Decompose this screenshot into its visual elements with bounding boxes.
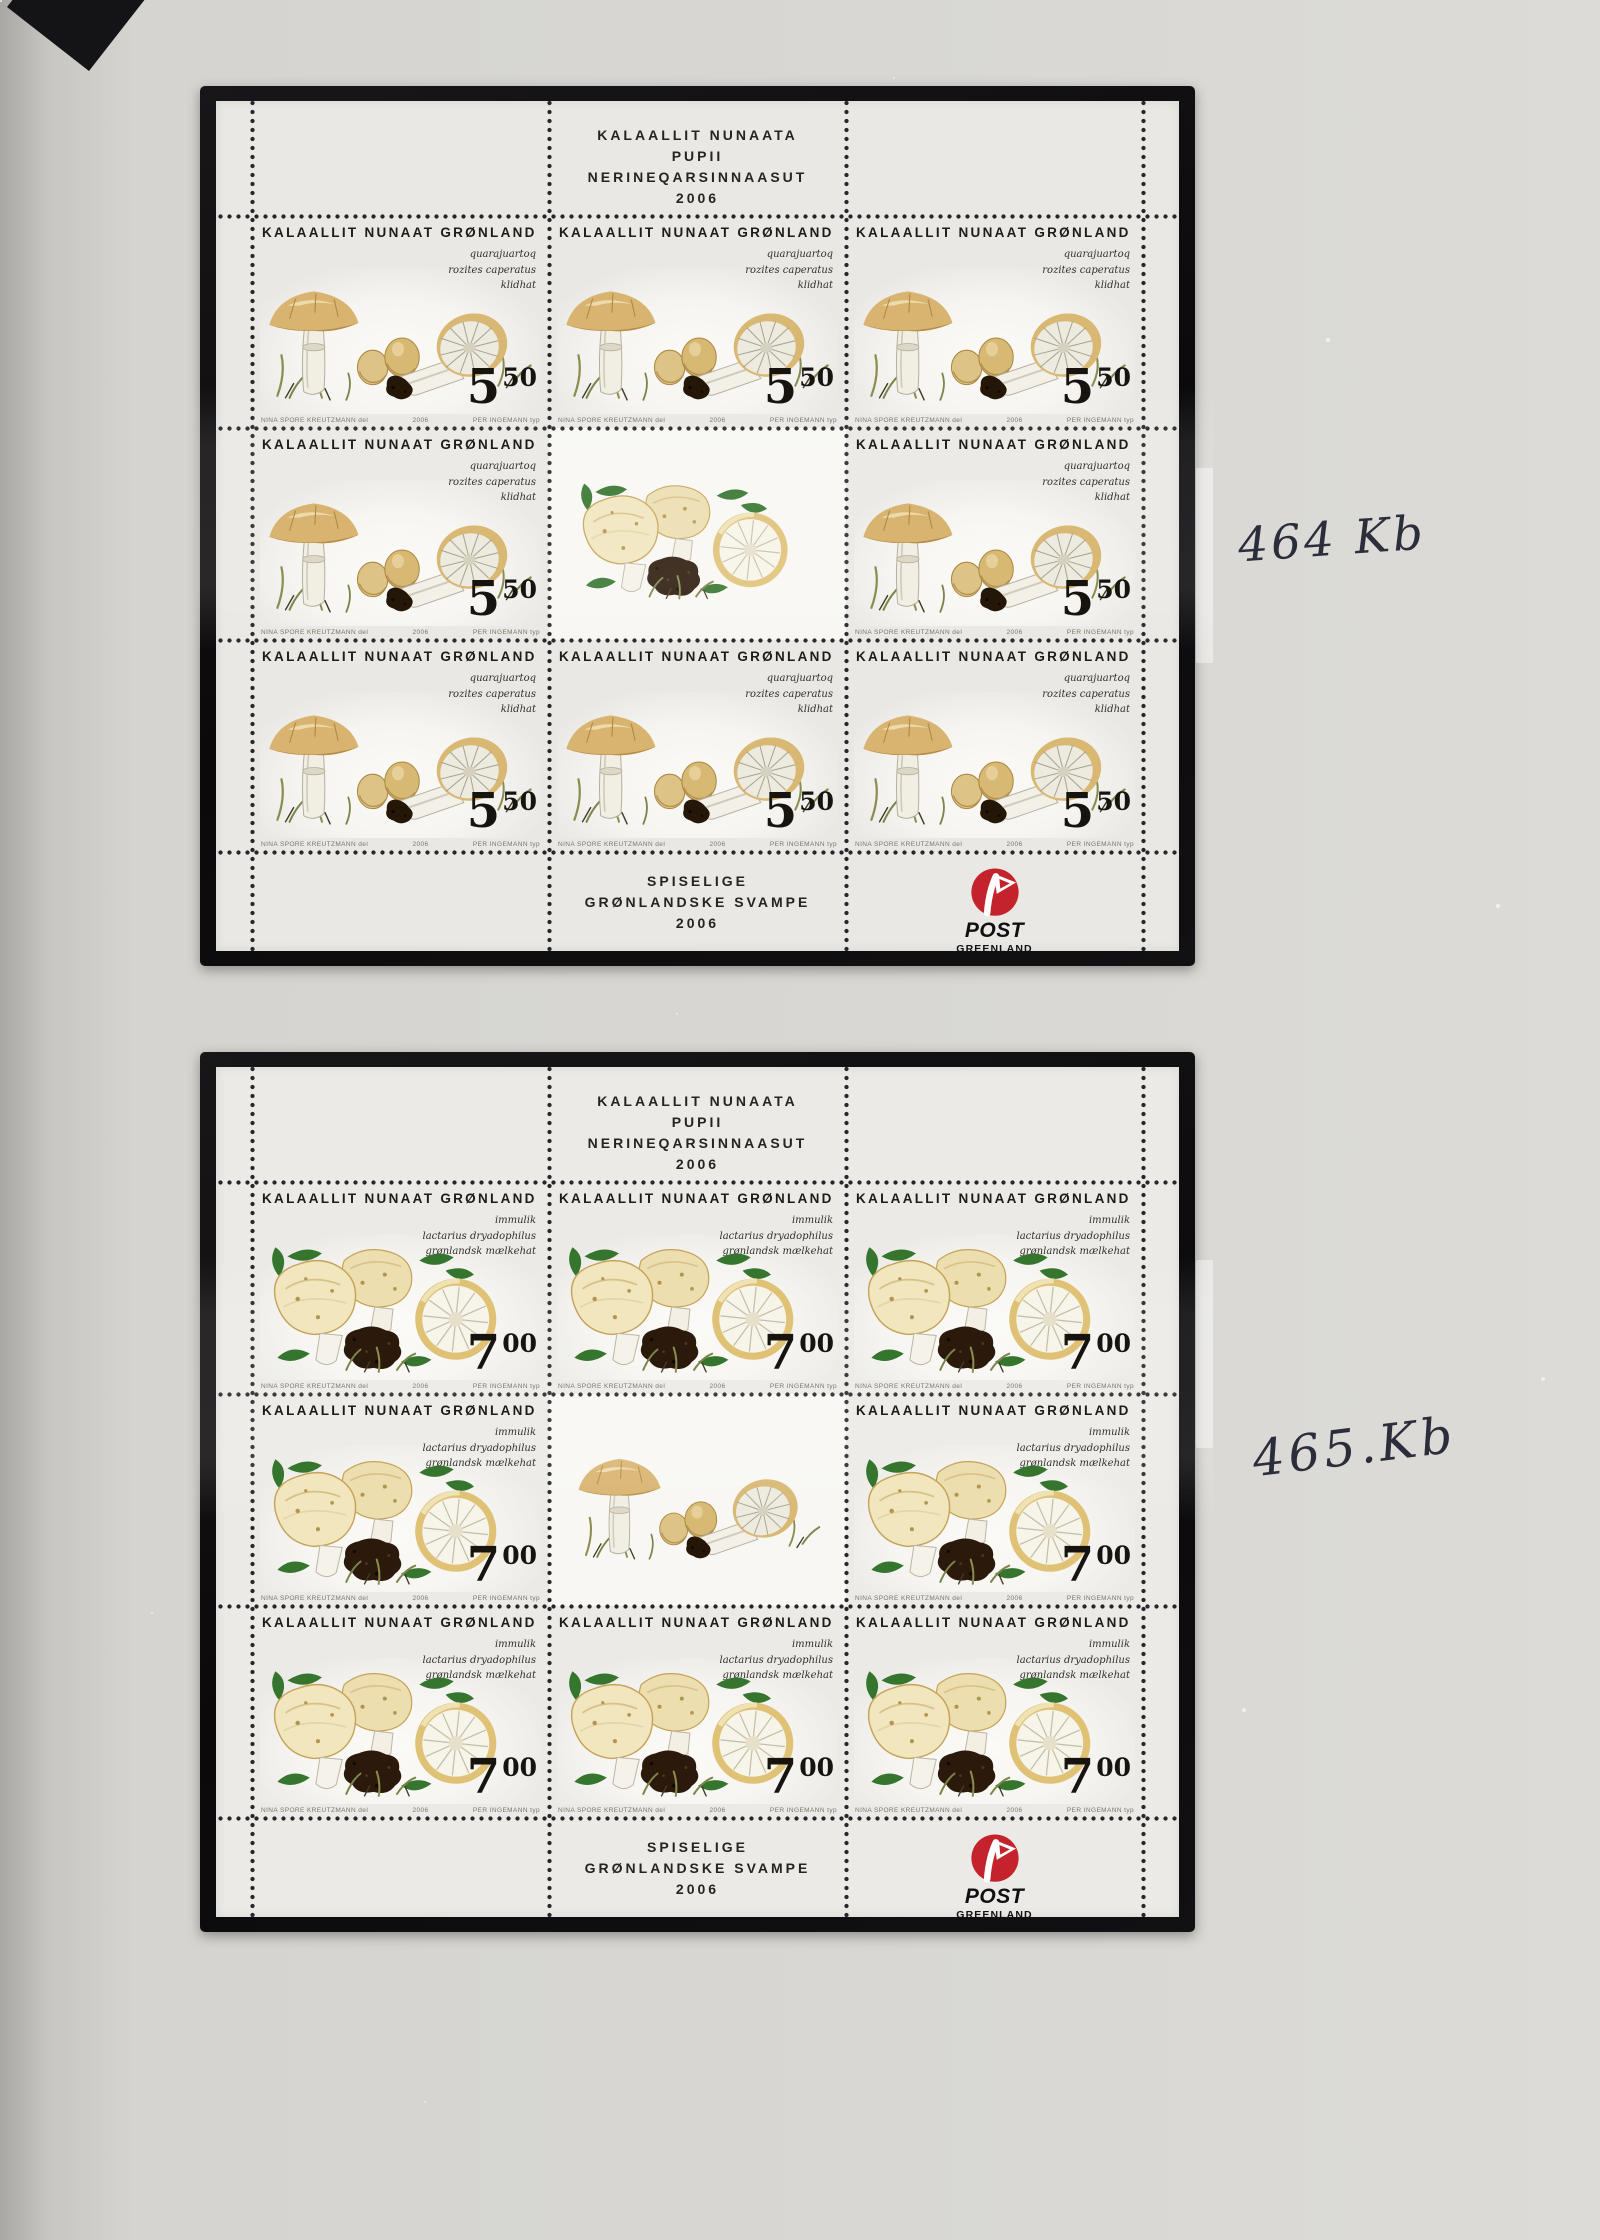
credit-artist: NINA SPORE KREUTZMANN del [855, 841, 962, 848]
stamp: KALAALLIT NUNAAT GRØNLAND immulik lactar… [549, 1182, 846, 1394]
stamp: KALAALLIT NUNAAT GRØNLAND immulik lactar… [846, 1606, 1143, 1818]
denomination: 7 00 [1061, 1544, 1131, 1586]
credit-year: 2006 [413, 841, 429, 848]
dust-specks [0, 0, 2, 2]
denomination-sup: 00 [1096, 1545, 1131, 1568]
credit-artist: NINA SPORE KREUTZMANN del [261, 1595, 368, 1602]
stamp: KALAALLIT NUNAAT GRØNLAND quarajuartoq r… [252, 428, 549, 640]
credit-artist: NINA SPORE KREUTZMANN del [558, 1383, 665, 1390]
species-line: immulik [1017, 1425, 1131, 1441]
species-line: grønlandsk mælkehat [423, 1668, 537, 1684]
mushroom-illustration [567, 464, 829, 604]
credit-artist: NINA SPORE KREUTZMANN del [261, 629, 368, 636]
stamp-credits: NINA SPORE KREUTZMANN del 2006 PER INGEM… [855, 841, 1134, 848]
species-line: quarajuartoq [1042, 671, 1130, 687]
credit-artist: NINA SPORE KREUTZMANN del [558, 841, 665, 848]
stamp: KALAALLIT NUNAAT GRØNLAND immulik lactar… [549, 1606, 846, 1818]
mount-strip-edge [1196, 468, 1213, 663]
credit-year: 2006 [413, 629, 429, 636]
species-names: immulik lactarius dryadophilus grønlands… [1017, 1213, 1131, 1260]
top-sheet-mount: KALAALLIT NUNAATA PUPII NERINEQARSINNAAS… [200, 86, 1195, 966]
denomination-main: 7 [764, 1756, 797, 1798]
stamp: KALAALLIT NUNAAT GRØNLAND quarajuartoq r… [549, 640, 846, 852]
credit-typographer: PER INGEMANN typ [1067, 1383, 1134, 1390]
stamp: KALAALLIT NUNAAT GRØNLAND quarajuartoq r… [252, 216, 549, 428]
species-line: quarajuartoq [1042, 459, 1130, 475]
inscription-line: NERINEQARSINNAASUT [549, 1133, 846, 1154]
stamp-credits: NINA SPORE KREUTZMANN del 2006 PER INGEM… [261, 1807, 540, 1814]
credit-year: 2006 [1007, 841, 1023, 848]
stamp: KALAALLIT NUNAAT GRØNLAND quarajuartoq r… [846, 216, 1143, 428]
species-line: grønlandsk mælkehat [423, 1244, 537, 1260]
denomination-main: 7 [467, 1332, 500, 1374]
denomination-sup: 00 [1096, 1757, 1131, 1780]
denomination: 5 50 [764, 366, 834, 408]
stamp: KALAALLIT NUNAAT GRØNLAND quarajuartoq r… [846, 640, 1143, 852]
species-names: quarajuartoq rozites caperatus klidhat [448, 459, 536, 506]
stamp-grid: KALAALLIT NUNAAT GRØNLAND quarajuartoq r… [252, 216, 1143, 852]
credit-typographer: PER INGEMANN typ [473, 1807, 540, 1814]
species-line: klidhat [745, 278, 833, 294]
species-line: quarajuartoq [1042, 247, 1130, 263]
sheet-title-inscription: KALAALLIT NUNAATA PUPII NERINEQARSINNAAS… [549, 1091, 846, 1175]
stamp: KALAALLIT NUNAAT GRØNLAND quarajuartoq r… [846, 428, 1143, 640]
credit-year: 2006 [413, 417, 429, 424]
credit-typographer: PER INGEMANN typ [1067, 629, 1134, 636]
country-inscription: KALAALLIT NUNAAT GRØNLAND [559, 225, 846, 240]
species-line: immulik [423, 1213, 537, 1229]
species-names: quarajuartoq rozites caperatus klidhat [1042, 247, 1130, 294]
country-inscription: KALAALLIT NUNAAT GRØNLAND [559, 1191, 846, 1206]
species-names: immulik lactarius dryadophilus grønlands… [423, 1425, 537, 1472]
credit-artist: NINA SPORE KREUTZMANN del [855, 1807, 962, 1814]
species-line: grønlandsk mælkehat [423, 1456, 537, 1472]
perforation-line [216, 636, 1179, 645]
credit-typographer: PER INGEMANN typ [770, 417, 837, 424]
stamp-credits: NINA SPORE KREUTZMANN del 2006 PER INGEM… [558, 1807, 837, 1814]
denomination: 5 50 [467, 366, 537, 408]
stamp-credits: NINA SPORE KREUTZMANN del 2006 PER INGEM… [855, 1807, 1134, 1814]
species-line: klidhat [448, 278, 536, 294]
denomination: 5 50 [1061, 366, 1131, 408]
species-line: quarajuartoq [448, 247, 536, 263]
denomination-sup: 50 [799, 367, 834, 390]
species-names: immulik lactarius dryadophilus grønlands… [720, 1213, 834, 1260]
species-line: rozites caperatus [1042, 687, 1130, 703]
species-line: grønlandsk mælkehat [1017, 1456, 1131, 1472]
denomination-sup: 50 [502, 367, 537, 390]
denomination: 7 00 [467, 1756, 537, 1798]
credit-artist: NINA SPORE KREUTZMANN del [855, 417, 962, 424]
credit-artist: NINA SPORE KREUTZMANN del [261, 841, 368, 848]
denomination-main: 5 [467, 578, 500, 620]
perforation-line [248, 1067, 257, 1917]
credit-typographer: PER INGEMANN typ [1067, 1595, 1134, 1602]
inscription-line: 2006 [549, 1879, 846, 1900]
species-line: immulik [720, 1637, 834, 1653]
stamp-credits: NINA SPORE KREUTZMANN del 2006 PER INGEM… [261, 1383, 540, 1390]
country-inscription: KALAALLIT NUNAAT GRØNLAND [856, 1615, 1143, 1630]
perforation-line [216, 848, 1179, 857]
species-line: lactarius dryadophilus [423, 1441, 537, 1457]
species-line: quarajuartoq [448, 459, 536, 475]
species-line: immulik [423, 1425, 537, 1441]
denomination-sup: 00 [502, 1333, 537, 1356]
denomination-main: 7 [1061, 1544, 1094, 1586]
perforation-line [216, 1602, 1179, 1611]
species-line: lactarius dryadophilus [720, 1653, 834, 1669]
stamp-credits: NINA SPORE KREUTZMANN del 2006 PER INGEM… [261, 841, 540, 848]
country-inscription: KALAALLIT NUNAAT GRØNLAND [262, 1615, 549, 1630]
denomination: 5 50 [1061, 578, 1131, 620]
denomination: 7 00 [1061, 1756, 1131, 1798]
species-line: klidhat [448, 490, 536, 506]
mushroom-illustration [567, 1430, 829, 1570]
denomination-sup: 00 [799, 1333, 834, 1356]
denomination-main: 5 [467, 790, 500, 832]
credit-typographer: PER INGEMANN typ [1067, 1807, 1134, 1814]
logo-greenland-text: GREENLAND [956, 943, 1032, 955]
credit-year: 2006 [1007, 1383, 1023, 1390]
denomination: 7 00 [467, 1544, 537, 1586]
denomination-main: 7 [1061, 1756, 1094, 1798]
stamp: KALAALLIT NUNAAT GRØNLAND immulik lactar… [252, 1394, 549, 1606]
credit-artist: NINA SPORE KREUTZMANN del [855, 1595, 962, 1602]
denomination: 7 00 [467, 1332, 537, 1374]
post-greenland-logo: POST GREENLAND [846, 1831, 1143, 1921]
inscription-line: KALAALLIT NUNAATA [549, 1091, 846, 1112]
denomination-main: 5 [1061, 578, 1094, 620]
species-line: rozites caperatus [745, 263, 833, 279]
denomination-sup: 50 [1096, 579, 1131, 602]
miniature-sheet-700: KALAALLIT NUNAATA PUPII NERINEQARSINNAAS… [216, 1067, 1179, 1917]
species-line: lactarius dryadophilus [1017, 1653, 1131, 1669]
species-line: quarajuartoq [745, 247, 833, 263]
credit-artist: NINA SPORE KREUTZMANN del [558, 1807, 665, 1814]
denomination-main: 7 [1061, 1332, 1094, 1374]
stamp-credits: NINA SPORE KREUTZMANN del 2006 PER INGEM… [558, 1383, 837, 1390]
denomination-sup: 50 [502, 579, 537, 602]
species-line: klidhat [448, 702, 536, 718]
denomination-main: 5 [1061, 366, 1094, 408]
perforation-line [216, 1390, 1179, 1399]
inscription-line: PUPII [549, 1112, 846, 1133]
denomination-main: 7 [467, 1544, 500, 1586]
inscription-line: NERINEQARSINNAASUT [549, 167, 846, 188]
species-line: grønlandsk mælkehat [720, 1244, 834, 1260]
species-line: klidhat [745, 702, 833, 718]
center-label [549, 1394, 846, 1606]
inscription-line: GRØNLANDSKE SVAMPE [549, 892, 846, 913]
credit-year: 2006 [1007, 417, 1023, 424]
species-line: klidhat [1042, 278, 1130, 294]
stamp-credits: NINA SPORE KREUTZMANN del 2006 PER INGEM… [558, 841, 837, 848]
country-inscription: KALAALLIT NUNAAT GRØNLAND [856, 649, 1143, 664]
species-line: immulik [1017, 1213, 1131, 1229]
species-names: quarajuartoq rozites caperatus klidhat [1042, 459, 1130, 506]
post-logo-icon [967, 865, 1023, 921]
credit-year: 2006 [710, 841, 726, 848]
species-line: rozites caperatus [1042, 475, 1130, 491]
perforation-line [216, 1178, 1179, 1187]
country-inscription: KALAALLIT NUNAAT GRØNLAND [559, 1615, 846, 1630]
credit-typographer: PER INGEMANN typ [473, 1595, 540, 1602]
species-names: quarajuartoq rozites caperatus klidhat [448, 247, 536, 294]
species-names: immulik lactarius dryadophilus grønlands… [1017, 1425, 1131, 1472]
country-inscription: KALAALLIT NUNAAT GRØNLAND [856, 225, 1143, 240]
credit-typographer: PER INGEMANN typ [473, 1383, 540, 1390]
species-names: immulik lactarius dryadophilus grønlands… [1017, 1637, 1131, 1684]
album-page-corner [7, 0, 153, 71]
denomination: 7 00 [764, 1756, 834, 1798]
perforation-line [216, 1814, 1179, 1823]
mount-strip-edge [1196, 1260, 1213, 1448]
inscription-line: PUPII [549, 146, 846, 167]
inscription-line: KALAALLIT NUNAATA [549, 125, 846, 146]
perforation-line [216, 424, 1179, 433]
inscription-line: 2006 [549, 1154, 846, 1175]
species-line: rozites caperatus [448, 263, 536, 279]
stamp-credits: NINA SPORE KREUTZMANN del 2006 PER INGEM… [261, 1595, 540, 1602]
denomination-main: 7 [467, 1756, 500, 1798]
credit-typographer: PER INGEMANN typ [473, 629, 540, 636]
credit-typographer: PER INGEMANN typ [1067, 841, 1134, 848]
stamp-credits: NINA SPORE KREUTZMANN del 2006 PER INGEM… [855, 1383, 1134, 1390]
logo-post-text: POST [965, 1885, 1024, 1909]
species-line: grønlandsk mælkehat [1017, 1668, 1131, 1684]
credit-year: 2006 [413, 1383, 429, 1390]
stamp-credits: NINA SPORE KREUTZMANN del 2006 PER INGEM… [855, 417, 1134, 424]
credit-artist: NINA SPORE KREUTZMANN del [261, 1383, 368, 1390]
country-inscription: KALAALLIT NUNAAT GRØNLAND [856, 1191, 1143, 1206]
country-inscription: KALAALLIT NUNAAT GRØNLAND [559, 649, 846, 664]
denomination-main: 7 [764, 1332, 797, 1374]
stamp-credits: NINA SPORE KREUTZMANN del 2006 PER INGEM… [261, 629, 540, 636]
stamp-grid: KALAALLIT NUNAAT GRØNLAND immulik lactar… [252, 1182, 1143, 1818]
credit-year: 2006 [710, 1807, 726, 1814]
credit-artist: NINA SPORE KREUTZMANN del [261, 417, 368, 424]
species-line: lactarius dryadophilus [423, 1229, 537, 1245]
stamp: KALAALLIT NUNAAT GRØNLAND immulik lactar… [846, 1182, 1143, 1394]
country-inscription: KALAALLIT NUNAAT GRØNLAND [262, 1403, 549, 1418]
species-line: klidhat [1042, 490, 1130, 506]
stamp-credits: NINA SPORE KREUTZMANN del 2006 PER INGEM… [558, 417, 837, 424]
inscription-line: 2006 [549, 188, 846, 209]
credit-year: 2006 [710, 417, 726, 424]
credit-year: 2006 [1007, 1807, 1023, 1814]
species-line: immulik [1017, 1637, 1131, 1653]
country-inscription: KALAALLIT NUNAAT GRØNLAND [856, 437, 1143, 452]
country-inscription: KALAALLIT NUNAAT GRØNLAND [262, 437, 549, 452]
species-line: grønlandsk mælkehat [1017, 1244, 1131, 1260]
credit-year: 2006 [1007, 629, 1023, 636]
denomination: 7 00 [1061, 1332, 1131, 1374]
inscription-line: GRØNLANDSKE SVAMPE [549, 1858, 846, 1879]
credit-typographer: PER INGEMANN typ [770, 1383, 837, 1390]
denomination-main: 5 [467, 366, 500, 408]
credit-artist: NINA SPORE KREUTZMANN del [855, 629, 962, 636]
credit-typographer: PER INGEMANN typ [1067, 417, 1134, 424]
stamp: KALAALLIT NUNAAT GRØNLAND quarajuartoq r… [549, 216, 846, 428]
species-line: immulik [720, 1213, 834, 1229]
center-label [549, 428, 846, 640]
stamp: KALAALLIT NUNAAT GRØNLAND immulik lactar… [252, 1606, 549, 1818]
denomination-sup: 00 [502, 1757, 537, 1780]
denomination: 5 50 [764, 790, 834, 832]
denomination-sup: 00 [799, 1757, 834, 1780]
species-names: quarajuartoq rozites caperatus klidhat [448, 671, 536, 718]
stamp: KALAALLIT NUNAAT GRØNLAND quarajuartoq r… [252, 640, 549, 852]
credit-year: 2006 [413, 1807, 429, 1814]
species-line: grønlandsk mælkehat [720, 1668, 834, 1684]
inscription-line: SPISELIGE [549, 871, 846, 892]
inscription-line: 2006 [549, 913, 846, 934]
stamp-credits: NINA SPORE KREUTZMANN del 2006 PER INGEM… [855, 629, 1134, 636]
denomination-sup: 50 [502, 791, 537, 814]
species-line: klidhat [1042, 702, 1130, 718]
denomination-main: 5 [764, 790, 797, 832]
credit-year: 2006 [710, 1383, 726, 1390]
sheet-footer-inscription: SPISELIGE GRØNLANDSKE SVAMPE 2006 [549, 1837, 846, 1900]
country-inscription: KALAALLIT NUNAAT GRØNLAND [856, 1403, 1143, 1418]
sheet-footer-inscription: SPISELIGE GRØNLANDSKE SVAMPE 2006 [549, 871, 846, 934]
country-inscription: KALAALLIT NUNAAT GRØNLAND [262, 225, 549, 240]
post-logo-icon [967, 1831, 1023, 1887]
miniature-sheet-550: KALAALLIT NUNAATA PUPII NERINEQARSINNAAS… [216, 101, 1179, 951]
denomination: 5 50 [467, 578, 537, 620]
country-inscription: KALAALLIT NUNAAT GRØNLAND [262, 1191, 549, 1206]
species-line: lactarius dryadophilus [1017, 1441, 1131, 1457]
inscription-line: SPISELIGE [549, 1837, 846, 1858]
species-line: lactarius dryadophilus [1017, 1229, 1131, 1245]
credit-artist: NINA SPORE KREUTZMANN del [261, 1807, 368, 1814]
denomination-sup: 50 [1096, 791, 1131, 814]
species-line: lactarius dryadophilus [423, 1653, 537, 1669]
stamp-credits: NINA SPORE KREUTZMANN del 2006 PER INGEM… [261, 417, 540, 424]
credit-typographer: PER INGEMANN typ [473, 417, 540, 424]
denomination-sup: 50 [1096, 367, 1131, 390]
denomination-main: 5 [764, 366, 797, 408]
denomination-main: 5 [1061, 790, 1094, 832]
post-greenland-logo: POST GREENLAND [846, 865, 1143, 955]
species-line: immulik [423, 1637, 537, 1653]
country-inscription: KALAALLIT NUNAAT GRØNLAND [262, 649, 549, 664]
species-line: rozites caperatus [448, 687, 536, 703]
credit-year: 2006 [413, 1595, 429, 1602]
credit-year: 2006 [1007, 1595, 1023, 1602]
species-line: rozites caperatus [745, 687, 833, 703]
stamp: KALAALLIT NUNAAT GRØNLAND immulik lactar… [252, 1182, 549, 1394]
stamp-credits: NINA SPORE KREUTZMANN del 2006 PER INGEM… [855, 1595, 1134, 1602]
species-names: quarajuartoq rozites caperatus klidhat [1042, 671, 1130, 718]
species-line: rozites caperatus [448, 475, 536, 491]
denomination-sup: 00 [502, 1545, 537, 1568]
credit-typographer: PER INGEMANN typ [770, 1807, 837, 1814]
species-line: rozites caperatus [1042, 263, 1130, 279]
denomination: 5 50 [1061, 790, 1131, 832]
denomination-sup: 50 [799, 791, 834, 814]
species-line: quarajuartoq [448, 671, 536, 687]
species-line: lactarius dryadophilus [720, 1229, 834, 1245]
stamp: KALAALLIT NUNAAT GRØNLAND immulik lactar… [846, 1394, 1143, 1606]
species-names: immulik lactarius dryadophilus grønlands… [423, 1213, 537, 1260]
logo-greenland-text: GREENLAND [956, 1909, 1032, 1921]
denomination-sup: 00 [1096, 1333, 1131, 1356]
handwritten-annotation: 465.Kb [1249, 1406, 1459, 1489]
species-names: immulik lactarius dryadophilus grønlands… [720, 1637, 834, 1684]
credit-typographer: PER INGEMANN typ [770, 841, 837, 848]
bottom-sheet-mount: KALAALLIT NUNAATA PUPII NERINEQARSINNAAS… [200, 1052, 1195, 1932]
species-names: quarajuartoq rozites caperatus klidhat [745, 247, 833, 294]
credit-artist: NINA SPORE KREUTZMANN del [558, 417, 665, 424]
species-line: quarajuartoq [745, 671, 833, 687]
perforation-line [216, 212, 1179, 221]
handwritten-annotation: 464 Kb [1236, 506, 1427, 574]
credit-typographer: PER INGEMANN typ [473, 841, 540, 848]
sheet-title-inscription: KALAALLIT NUNAATA PUPII NERINEQARSINNAAS… [549, 125, 846, 209]
denomination: 5 50 [467, 790, 537, 832]
species-names: quarajuartoq rozites caperatus klidhat [745, 671, 833, 718]
perforation-line [248, 101, 257, 951]
credit-artist: NINA SPORE KREUTZMANN del [855, 1383, 962, 1390]
logo-post-text: POST [965, 919, 1024, 943]
denomination: 7 00 [764, 1332, 834, 1374]
species-names: immulik lactarius dryadophilus grønlands… [423, 1637, 537, 1684]
